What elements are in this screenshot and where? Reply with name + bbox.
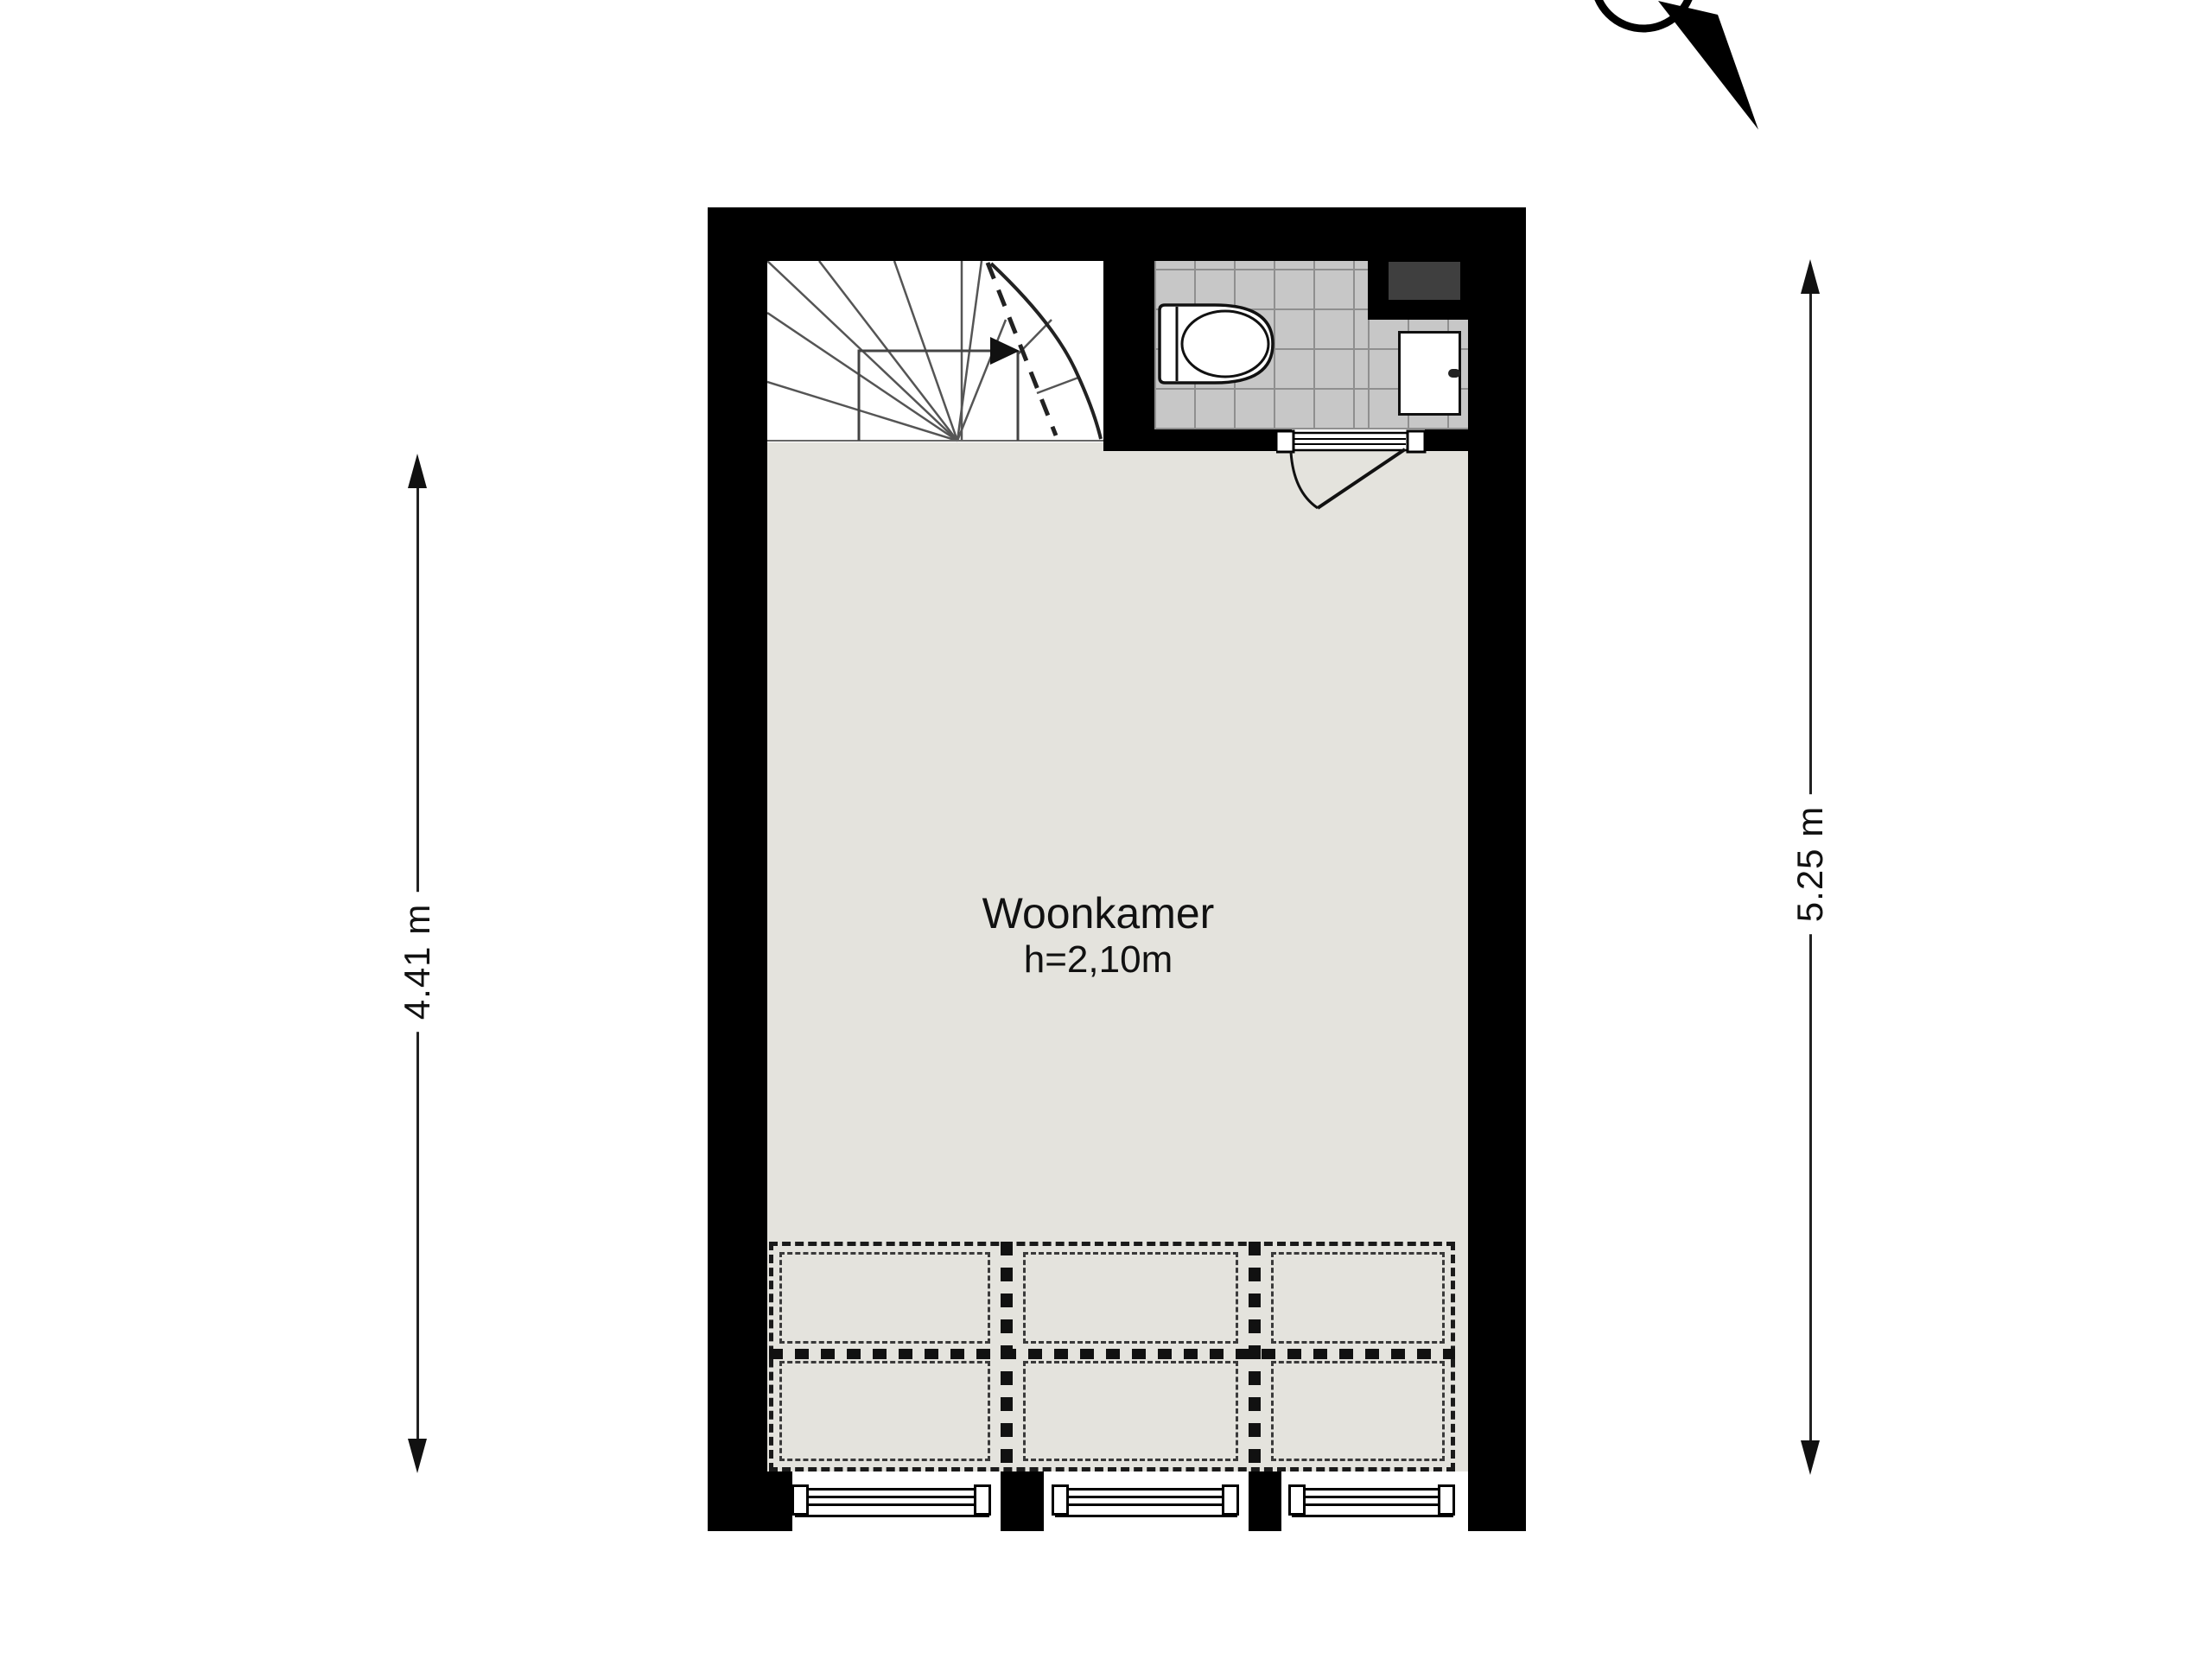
dashed-divider-horizontal [769, 1349, 1455, 1359]
window-bay-1 [795, 1488, 989, 1517]
stair-direction-arrow-icon [990, 337, 1020, 365]
window-cap [974, 1484, 991, 1516]
dimension-arrow-icon [408, 454, 427, 488]
compass-icon [1551, 0, 1810, 147]
wall-bathroom-bottom-left [1154, 429, 1292, 451]
room-name-label: Woonkamer [982, 888, 1215, 938]
dashed-cell [1271, 1252, 1445, 1344]
wall-top [708, 207, 1526, 261]
window-glazing-line [1055, 1503, 1237, 1506]
dimension-arrow-icon [408, 1439, 427, 1473]
window-cap [1052, 1484, 1069, 1516]
window-glazing-line [795, 1503, 989, 1506]
window-glazing-line [1292, 1496, 1453, 1498]
dashed-cell [779, 1361, 990, 1461]
window-bay-3 [1292, 1488, 1453, 1517]
dimension-arrow-icon [1801, 1440, 1820, 1475]
pier-bottom-1 [1001, 1471, 1044, 1531]
toilet-icon [1156, 301, 1281, 389]
pier-bottom-right-corner [1468, 1471, 1526, 1531]
window-glazing-line [1055, 1496, 1237, 1498]
dashed-cell [779, 1252, 990, 1344]
duct-shaft [1389, 262, 1460, 300]
wall-stair-bathroom-divider [1103, 261, 1154, 451]
window-glazing-line [1292, 1503, 1453, 1506]
wall-left [708, 207, 767, 1531]
pier-bottom-2 [1249, 1471, 1281, 1531]
dashed-cell [1023, 1252, 1238, 1344]
window-glazing-line [795, 1496, 989, 1498]
window-cap [1222, 1484, 1239, 1516]
door-swing-icon [1276, 429, 1440, 537]
dimension-arrow-icon [1801, 259, 1820, 294]
wall-right [1468, 207, 1526, 1531]
dashed-cell [1023, 1361, 1238, 1461]
dimension-label-right: 5.25 m [1784, 794, 1836, 934]
pier-bottom-left-corner [708, 1471, 792, 1531]
stair-winder-icon [767, 261, 1103, 442]
window-cap [1288, 1484, 1306, 1516]
floorplan-canvas: Woonkamer h=2,10m 4.41 m 5.25 m [0, 0, 2212, 1659]
window-cap [791, 1484, 809, 1516]
dimension-label-left: 4.41 m [391, 892, 443, 1032]
window-cap [1438, 1484, 1455, 1516]
faucet-icon [1448, 369, 1460, 378]
room-height-label: h=2,10m [1024, 938, 1173, 982]
window-bay-2 [1055, 1488, 1237, 1517]
dashed-cell [1271, 1361, 1445, 1461]
